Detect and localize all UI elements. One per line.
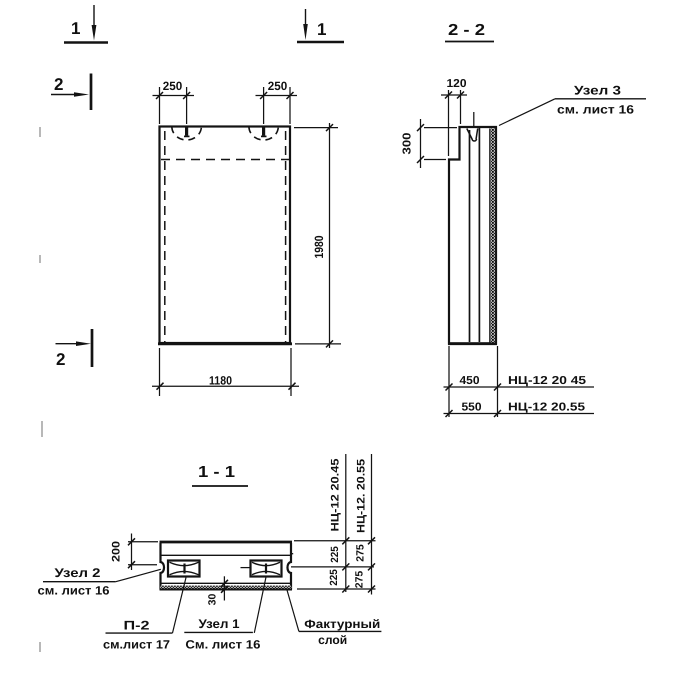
svg-text:200: 200 bbox=[111, 541, 123, 562]
svg-text:См. лист 16: См. лист 16 bbox=[185, 638, 260, 652]
svg-text:2 - 2: 2 - 2 bbox=[448, 22, 485, 39]
svg-text:НЦ-12 20.55: НЦ-12 20.55 bbox=[508, 402, 586, 414]
svg-text:275: 275 bbox=[354, 571, 366, 589]
svg-text:225: 225 bbox=[328, 569, 340, 586]
svg-text:275: 275 bbox=[355, 544, 367, 562]
svg-text:см. лист 16: см. лист 16 bbox=[557, 103, 634, 117]
svg-text:450: 450 bbox=[460, 375, 480, 387]
svg-text:П-2: П-2 bbox=[124, 619, 150, 633]
svg-text:Узел 2: Узел 2 bbox=[55, 566, 101, 580]
svg-text:2: 2 bbox=[56, 350, 65, 369]
svg-text:250: 250 bbox=[163, 79, 183, 93]
svg-text:1: 1 bbox=[71, 19, 80, 38]
svg-text:2: 2 bbox=[54, 75, 63, 94]
svg-text:НЦ-12 20.45: НЦ-12 20.45 bbox=[330, 459, 342, 532]
svg-text:1: 1 bbox=[317, 20, 326, 39]
svg-text:550: 550 bbox=[462, 402, 482, 414]
svg-text:250: 250 bbox=[268, 79, 288, 93]
svg-text:30: 30 bbox=[207, 594, 219, 606]
svg-text:Фактурный: Фактурный bbox=[304, 617, 380, 631]
svg-text:НЦ-12 20 45: НЦ-12 20 45 bbox=[508, 375, 587, 387]
svg-text:1180: 1180 bbox=[209, 374, 232, 388]
svg-text:300: 300 bbox=[402, 133, 414, 155]
svg-text:1 - 1: 1 - 1 bbox=[198, 464, 235, 481]
svg-text:слой: слой bbox=[318, 633, 347, 647]
svg-text:120: 120 bbox=[447, 78, 467, 90]
svg-text:см.лист 17: см.лист 17 bbox=[103, 638, 170, 652]
svg-text:1980: 1980 bbox=[312, 235, 326, 258]
svg-text:Узел 1: Узел 1 bbox=[199, 617, 240, 631]
svg-text:Узел 3: Узел 3 bbox=[574, 84, 621, 98]
svg-text:НЦ-12. 20.55: НЦ-12. 20.55 bbox=[356, 459, 368, 533]
svg-text:225: 225 bbox=[329, 546, 341, 563]
svg-text:см. лист 16: см. лист 16 bbox=[38, 584, 110, 598]
